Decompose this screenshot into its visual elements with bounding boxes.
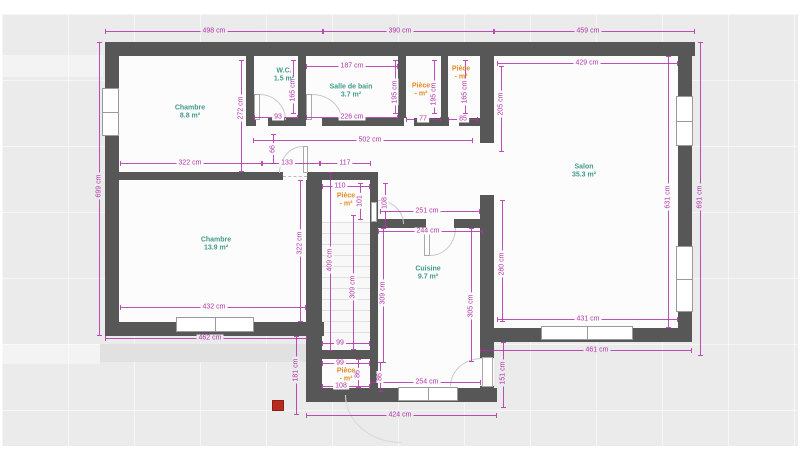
- room-area: 1.5 m²: [274, 76, 294, 84]
- dimension-label: 226 cm: [339, 114, 366, 121]
- room-area: - m²: [412, 91, 430, 99]
- window-salon-right-lower[interactable]: [676, 246, 693, 312]
- room-area: - m²: [452, 74, 470, 82]
- room-name: Chambre: [201, 237, 231, 245]
- dimension-label: 305 cm: [468, 293, 475, 320]
- dimension-label: 108: [382, 195, 389, 211]
- dimension-label: 85: [457, 116, 469, 123]
- door-leaf-entry-right[interactable]: [482, 357, 493, 387]
- dimension-label: 431 cm: [575, 316, 602, 323]
- terrace-shadow: [100, 344, 310, 362]
- dimension-label: 251 cm: [414, 208, 441, 215]
- background-highlight: [0, 344, 100, 364]
- room-label-cuisine[interactable]: Cuisine9.7 m²: [415, 266, 440, 283]
- room-name: Pièce: [452, 66, 470, 74]
- wall-wc-bath[interactable]: [298, 56, 306, 118]
- window-chambre1-left[interactable]: [102, 88, 119, 136]
- dimension-label: 133: [279, 160, 295, 167]
- dimension-label: 151 cm: [500, 360, 507, 387]
- room-label-pi-ce[interactable]: Pièce- m²: [337, 368, 355, 385]
- dimension-label: 77: [417, 116, 429, 123]
- dimension-label: 502 cm: [357, 137, 384, 144]
- wall-top[interactable]: [105, 42, 695, 56]
- dimension-label: 390 cm: [387, 28, 414, 35]
- room-name: Pièce: [412, 83, 430, 91]
- wall-bath-right[interactable]: [398, 56, 406, 118]
- dimension-label: 195 cm: [431, 81, 438, 108]
- dimension-line-h: [322, 363, 370, 364]
- door-swing-entry-bottom: [345, 395, 401, 443]
- dimension-label: 280 cm: [499, 251, 506, 278]
- dimension-label: 66: [270, 143, 277, 155]
- dimension-label: 86: [377, 371, 384, 383]
- room-name: Pièce: [337, 193, 355, 201]
- room-area: - m²: [337, 201, 355, 209]
- dimension-label: 691 cm: [697, 184, 704, 211]
- dimension-label: 254 cm: [414, 379, 441, 386]
- dimension-label: 272 cm: [238, 95, 245, 122]
- room-name: Pièce: [337, 368, 355, 376]
- dimension-label: 205 cm: [498, 91, 505, 118]
- dimension-label: 99: [334, 360, 346, 367]
- room-label-pi-ce[interactable]: Pièce- m²: [452, 66, 470, 83]
- dimension-label: 165 cm: [462, 79, 469, 106]
- room-label-salle-de-bain[interactable]: Salle de bain3.7 m²: [330, 84, 373, 101]
- room-name: W.C.: [274, 68, 294, 76]
- wall-chambre2-right[interactable]: [306, 180, 322, 322]
- room-label-pi-ce[interactable]: Pièce- m²: [337, 193, 355, 210]
- dimension-label: 309 cm: [380, 280, 387, 307]
- dimension-label: 432 cm: [201, 304, 228, 311]
- room-label-chambre[interactable]: Chambre13.9 m²: [201, 237, 231, 254]
- room-label-chambre[interactable]: Chambre8.8 m²: [175, 105, 205, 122]
- door-leaf-midpiece[interactable]: [371, 202, 377, 222]
- room-area: - m²: [337, 376, 355, 384]
- wall-cuisine-left[interactable]: [370, 227, 378, 388]
- wall-salon-left-top[interactable]: [480, 56, 494, 143]
- room-area: 35.3 m²: [572, 172, 596, 180]
- room-area: 3.7 m²: [330, 92, 373, 100]
- dimension-label: 631 cm: [665, 184, 672, 211]
- wall-chambre-divider[interactable]: [105, 172, 378, 180]
- window-chambre2-bottom[interactable]: [176, 317, 254, 332]
- dimension-label: 459 cm: [575, 28, 602, 35]
- room-area: 8.8 m²: [175, 113, 205, 121]
- dimension-label: 99: [334, 340, 346, 347]
- room-name: Cuisine: [415, 266, 440, 274]
- floorplan: 498 cm390 cm459 cm187 cm429 cm93226 cm77…: [0, 0, 800, 450]
- dimension-label: 424 cm: [387, 412, 414, 419]
- dimension-label: 93: [272, 114, 284, 121]
- room-area: 13.9 m²: [201, 245, 231, 253]
- dimension-label: 117: [337, 160, 352, 167]
- room-name: Salon: [572, 164, 596, 172]
- dimension-label: 309 cm: [350, 274, 357, 301]
- window-salon-bottom[interactable]: [541, 326, 633, 340]
- origin-marker[interactable]: [272, 400, 284, 411]
- dimension-label: 461 cm: [584, 347, 611, 354]
- room-label-w-c-[interactable]: W.C.1.5 m²: [274, 68, 294, 85]
- background-highlight: [0, 55, 103, 77]
- dimension-label: 429 cm: [574, 60, 601, 67]
- dimension-label: 498 cm: [201, 28, 228, 35]
- wall-wc-left[interactable]: [246, 56, 254, 118]
- window-salon-right-upper[interactable]: [676, 96, 693, 146]
- dimension-label: 101: [357, 193, 364, 209]
- wall-salon-left[interactable]: [480, 195, 494, 328]
- dimension-label: 86: [355, 368, 362, 380]
- door-leaf-chambre1[interactable]: [303, 146, 308, 173]
- entry-french-door[interactable]: [398, 387, 458, 401]
- dimension-label: 244 cm: [415, 228, 442, 235]
- room-label-salon[interactable]: Salon35.3 m²: [572, 164, 596, 181]
- dimension-label: 187 cm: [339, 63, 366, 70]
- dimension-label: 462 cm: [197, 335, 224, 342]
- floorplan-editor: 498 cm390 cm459 cm187 cm429 cm93226 cm77…: [0, 0, 800, 450]
- room-name: Chambre: [175, 105, 205, 113]
- opening-dashed-line: [283, 176, 307, 177]
- dimension-label: 322 cm: [297, 230, 304, 257]
- dimension-label: 699 cm: [96, 173, 103, 200]
- dimension-label: 181 cm: [293, 357, 300, 384]
- room-name: Salle de bain: [330, 84, 373, 92]
- dimension-label: 409 cm: [327, 247, 334, 274]
- room-area: 9.7 m²: [415, 274, 440, 282]
- dimension-label: 110: [332, 183, 347, 190]
- wall-bottompiece-top[interactable]: [310, 350, 378, 359]
- dimension-label: 195 cm: [392, 79, 399, 106]
- room-label-pi-ce[interactable]: Pièce- m²: [412, 83, 430, 100]
- wall-piece-divider[interactable]: [441, 56, 448, 118]
- dimension-label: 322 cm: [177, 160, 204, 167]
